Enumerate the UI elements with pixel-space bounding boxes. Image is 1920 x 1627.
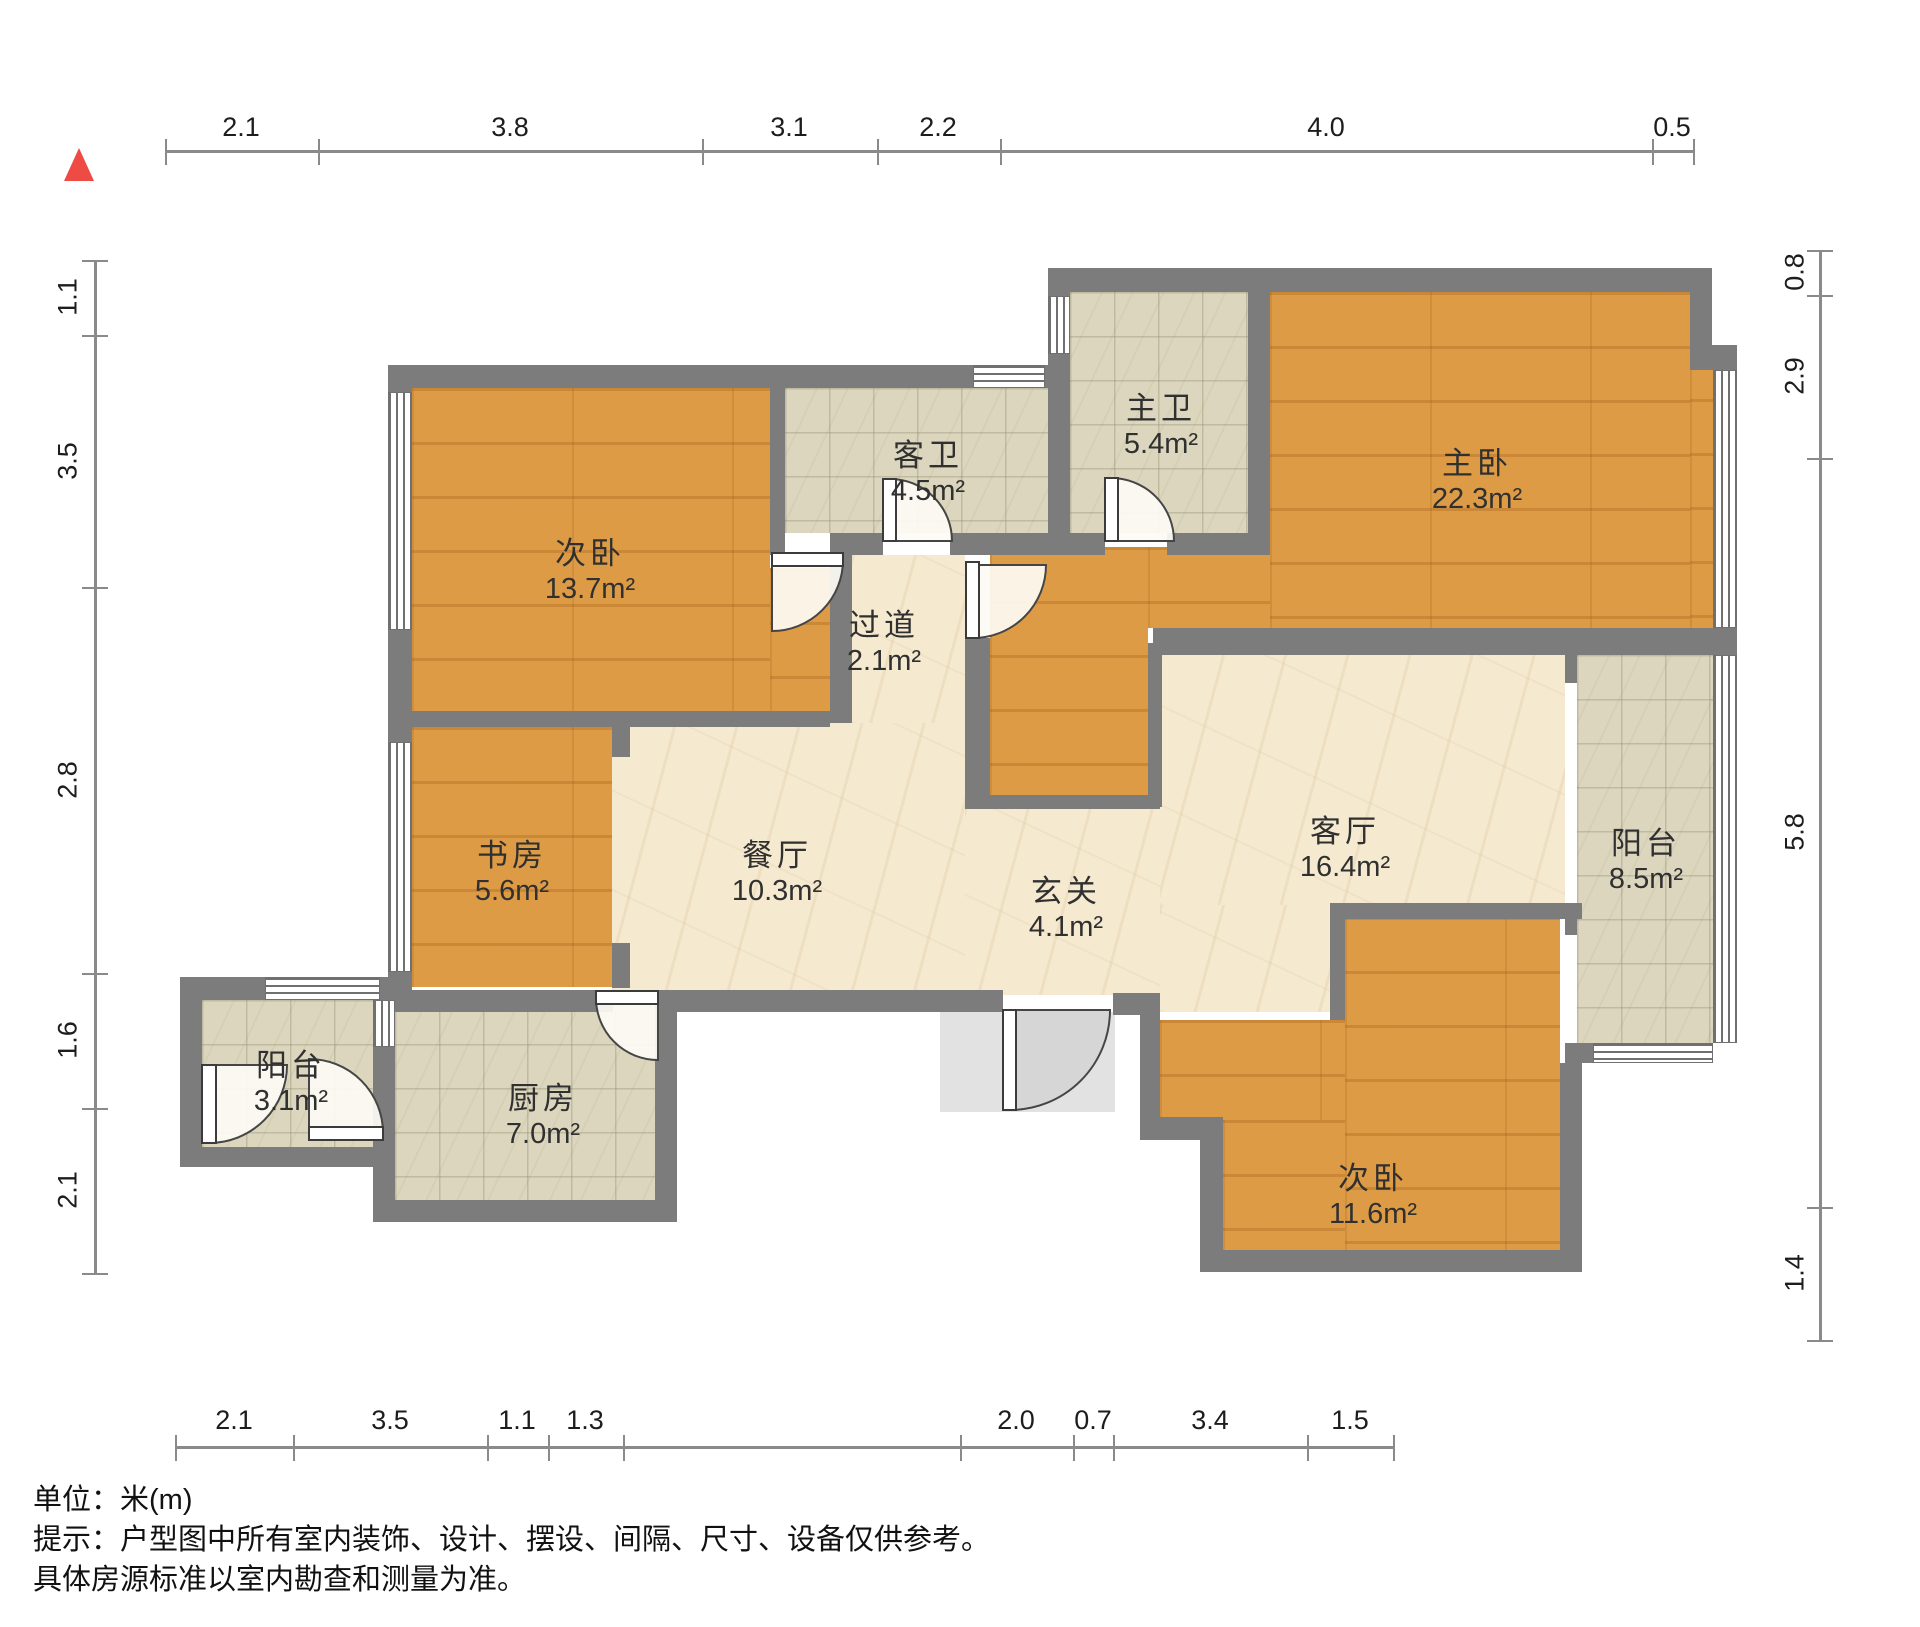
door-arc-master-entry <box>973 565 1046 638</box>
dim-tick <box>877 139 879 165</box>
room-label-guest-bath: 客卫4.5m² <box>891 430 965 508</box>
room-label-bedroom-top: 次卧13.7m² <box>545 528 635 606</box>
dim-tick <box>1807 295 1833 297</box>
dim-label: 1.1 <box>53 278 84 316</box>
dim-label: 0.8 <box>1780 253 1811 291</box>
dim-label: 3.5 <box>53 442 84 480</box>
dim-tick <box>487 1435 489 1461</box>
dim-tick <box>82 260 108 262</box>
dim-tick <box>318 139 320 165</box>
room-label-balcony-right: 阳台8.5m² <box>1609 818 1683 896</box>
door-arc-bedroom-top <box>772 560 843 631</box>
room-label-master-bath: 主卫5.4m² <box>1124 383 1198 461</box>
dim-tick <box>623 1435 625 1461</box>
dim-label: 2.1 <box>222 112 260 143</box>
tip-line-2: 具体房源标准以室内勘查和测量为准。 <box>33 1560 990 1600</box>
dim-label: 3.5 <box>371 1405 409 1436</box>
dim-line-bottom <box>175 1446 1393 1449</box>
door-arc-kitchen <box>596 998 658 1060</box>
dim-label: 1.3 <box>566 1405 604 1436</box>
dim-tick <box>548 1435 550 1461</box>
unit-note: 单位：米(m) <box>33 1480 990 1520</box>
room-label-kitchen: 厨房7.0m² <box>506 1073 580 1151</box>
dim-label: 4.0 <box>1307 112 1345 143</box>
door-leaf <box>202 1065 216 1143</box>
dim-tick <box>1113 1435 1115 1461</box>
dim-label: 2.2 <box>919 112 957 143</box>
door-leaf <box>772 553 843 566</box>
dim-tick <box>82 587 108 589</box>
dim-line-left <box>94 260 97 1273</box>
dim-tick <box>1307 1435 1309 1461</box>
floor-plan-canvas: 次卧13.7m² 客卫4.5m² 主卫5.4m² 主卧22.3m² 过道2.1m… <box>0 0 1920 1627</box>
dim-tick <box>293 1435 295 1461</box>
door-leaf <box>966 562 979 638</box>
dim-tick <box>82 335 108 337</box>
room-label-study: 书房5.6m² <box>475 830 549 908</box>
dim-tick <box>82 1273 108 1275</box>
door-arc-entry <box>1010 1010 1110 1110</box>
dim-tick <box>702 139 704 165</box>
dim-tick <box>1000 139 1002 165</box>
dim-line-top <box>165 150 1693 153</box>
dim-label: 3.4 <box>1191 1405 1229 1436</box>
dim-tick <box>960 1435 962 1461</box>
door-leaf <box>309 1127 383 1140</box>
dim-label: 1.6 <box>53 1021 84 1059</box>
room-label-balcony-left: 阳台3.1m² <box>254 1040 328 1118</box>
dim-line-right <box>1819 250 1822 1340</box>
dim-tick <box>175 1435 177 1461</box>
room-label-hallway: 过道2.1m² <box>847 600 921 678</box>
dim-label: 0.7 <box>1074 1405 1112 1436</box>
room-label-foyer: 玄关4.1m² <box>1029 866 1103 944</box>
dim-tick <box>82 973 108 975</box>
door-leaf <box>1105 478 1118 541</box>
door-arc-master-bath <box>1111 478 1174 541</box>
footer-notes: 单位：米(m) 提示：户型图中所有室内装饰、设计、摆设、间隔、尺寸、设备仅供参考… <box>33 1480 990 1600</box>
tip-line-1: 提示：户型图中所有室内装饰、设计、摆设、间隔、尺寸、设备仅供参考。 <box>33 1520 990 1560</box>
dim-tick <box>1807 458 1833 460</box>
dim-label: 2.8 <box>53 761 84 799</box>
door-leaf <box>1003 1010 1016 1110</box>
dim-label: 2.0 <box>997 1405 1035 1436</box>
dim-label: 1.4 <box>1780 1254 1811 1292</box>
door-layer <box>0 0 1920 1627</box>
dim-tick <box>1807 1207 1833 1209</box>
dim-tick <box>1807 1340 1833 1342</box>
room-label-dining: 餐厅10.3m² <box>732 830 822 908</box>
room-label-living: 客厅16.4m² <box>1300 806 1390 884</box>
dim-tick <box>1693 139 1695 165</box>
dim-label: 2.9 <box>1780 357 1811 395</box>
dim-tick <box>1393 1435 1395 1461</box>
dim-label: 5.8 <box>1780 813 1811 851</box>
dim-label: 1.1 <box>498 1405 536 1436</box>
dim-tick <box>1807 250 1833 252</box>
dim-label: 0.5 <box>1653 112 1691 143</box>
dim-label: 3.8 <box>491 112 529 143</box>
dim-tick <box>1073 1435 1075 1461</box>
dim-label: 2.1 <box>53 1171 84 1209</box>
door-leaf <box>596 991 658 1004</box>
dim-label: 2.1 <box>215 1405 253 1436</box>
dim-tick <box>82 1108 108 1110</box>
dim-label: 1.5 <box>1331 1405 1369 1436</box>
dim-tick <box>165 139 167 165</box>
dim-label: 3.1 <box>770 112 808 143</box>
room-label-bedroom-bottom: 次卧11.6m² <box>1329 1153 1417 1231</box>
room-label-master-bedroom: 主卧22.3m² <box>1432 438 1522 516</box>
